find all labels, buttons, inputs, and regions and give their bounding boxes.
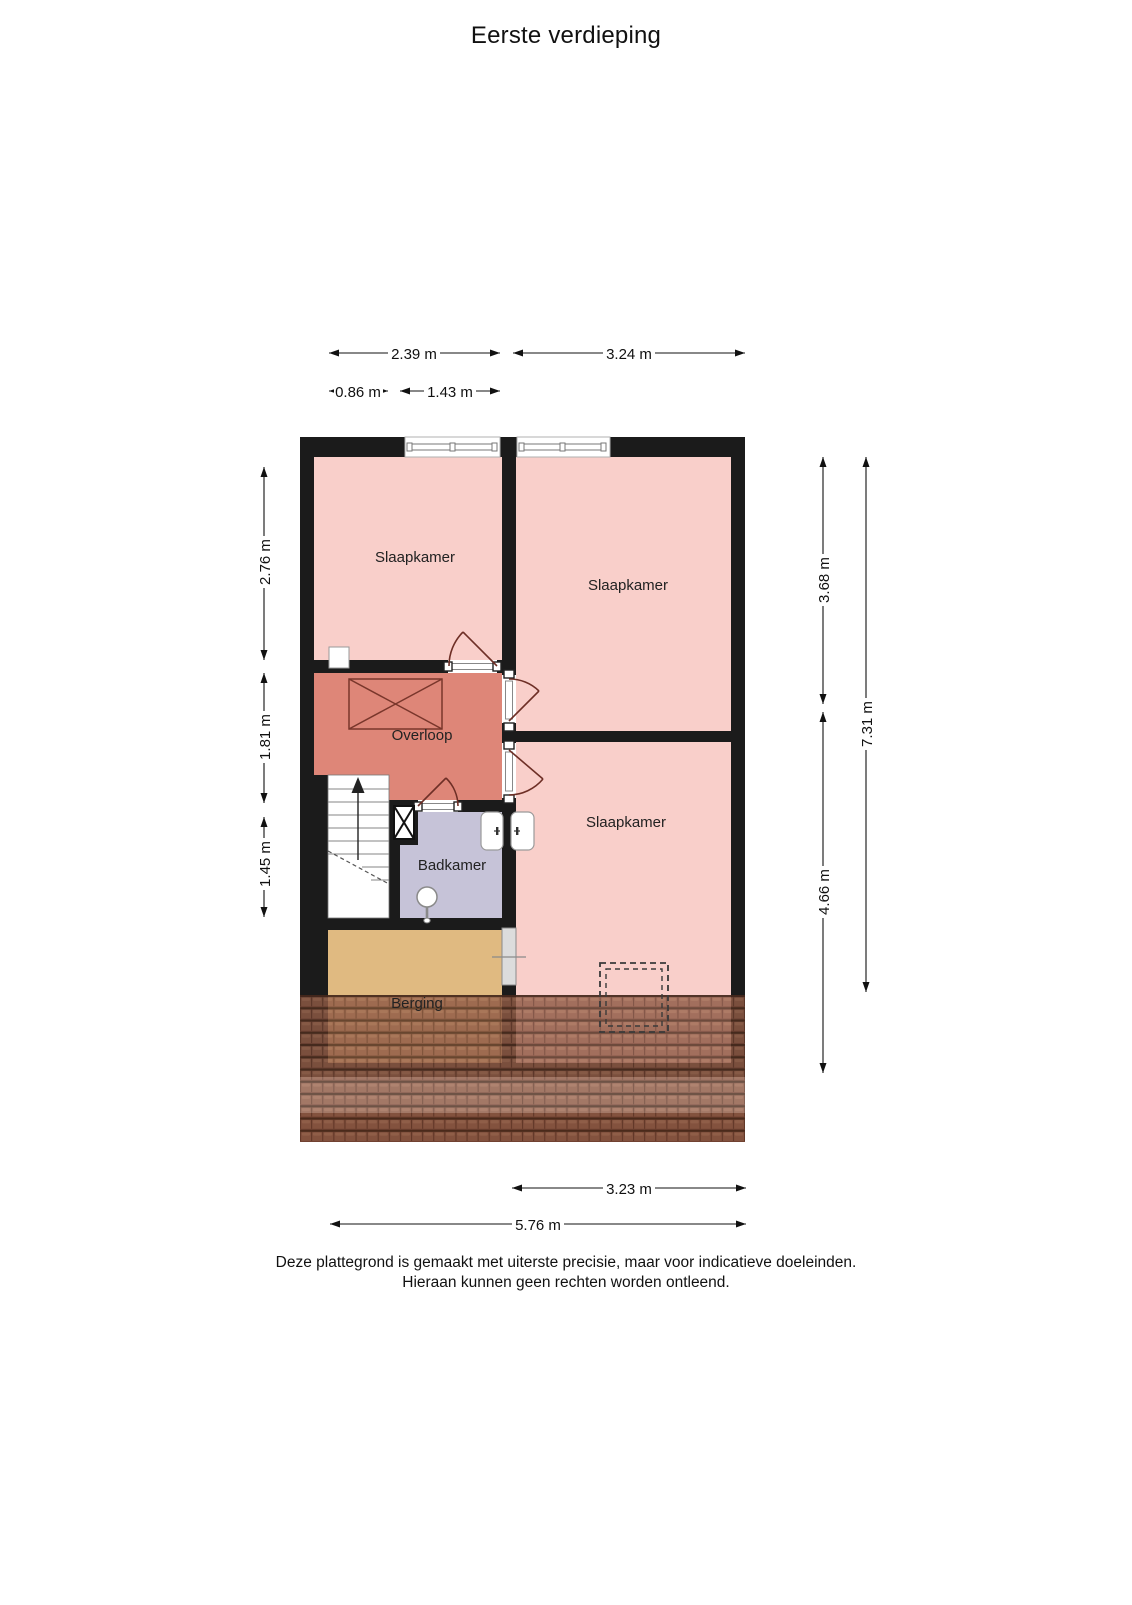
disclaimer-line-1: Deze plattegrond is gemaakt met uiterste… [0,1253,1132,1273]
dim-top-3-24: 3.24 m [513,344,745,363]
room-label-bathroom: Badkamer [418,857,486,874]
duct-shaft-icon [394,806,414,839]
dim-top-2-39: 2.39 m [329,344,500,363]
svg-text:3.23 m: 3.23 m [606,1181,652,1198]
room-label-storage: Berging [391,995,443,1012]
svg-text:0.86 m: 0.86 m [335,384,381,401]
dim-right-7-31: 7.31 m [857,457,876,992]
window-top-right [517,437,610,457]
svg-text:1.81 m: 1.81 m [257,714,274,760]
dim-top-1-43: 1.43 m [400,382,500,401]
svg-text:1.43 m: 1.43 m [427,384,473,401]
radiator-bathroom [481,812,503,850]
dim-left-1-45: 1.45 m [255,817,274,917]
disclaimer-line-2: Hieraan kunnen geen rechten worden ontle… [0,1273,1132,1293]
dim-left-2-76: 2.76 m [255,467,274,660]
roof [300,995,745,1142]
room-label-landing: Overloop [392,727,453,744]
room-bedroom-top-right [516,457,731,731]
room-label-bedroom-bottom-right: Slaapkamer [586,814,666,831]
room-label-bedroom-left: Slaapkamer [375,549,455,566]
svg-text:3.68 m: 3.68 m [816,557,833,603]
svg-text:5.76 m: 5.76 m [515,1217,561,1234]
floorplan-canvas: Slaapkamer Slaapkamer Slaapkamer Overloo… [0,0,1132,1600]
rooms [314,457,731,1063]
svg-text:1.45 m: 1.45 m [257,841,274,887]
disclaimer: Deze plattegrond is gemaakt met uiterste… [0,1253,1132,1293]
svg-text:2.76 m: 2.76 m [257,539,274,585]
dim-bottom-3-23: 3.23 m [512,1179,746,1198]
stairs [328,775,389,918]
svg-text:4.66 m: 4.66 m [816,869,833,915]
room-label-bedroom-top-right: Slaapkamer [588,577,668,594]
window-top-left [405,437,500,457]
page-title: Eerste verdieping [0,22,1132,50]
radiator-bedroom [511,812,534,850]
dim-bottom-5-76: 5.76 m [330,1215,746,1234]
svg-text:2.39 m: 2.39 m [391,346,437,363]
wall-niche [329,647,349,668]
dim-right-3-68: 3.68 m [814,457,833,704]
svg-text:7.31 m: 7.31 m [859,701,876,747]
dim-right-4-66: 4.66 m [814,712,833,1073]
dim-left-1-81: 1.81 m [255,673,274,803]
dim-top-0-86: 0.86 m [329,382,388,401]
svg-text:3.24 m: 3.24 m [606,346,652,363]
